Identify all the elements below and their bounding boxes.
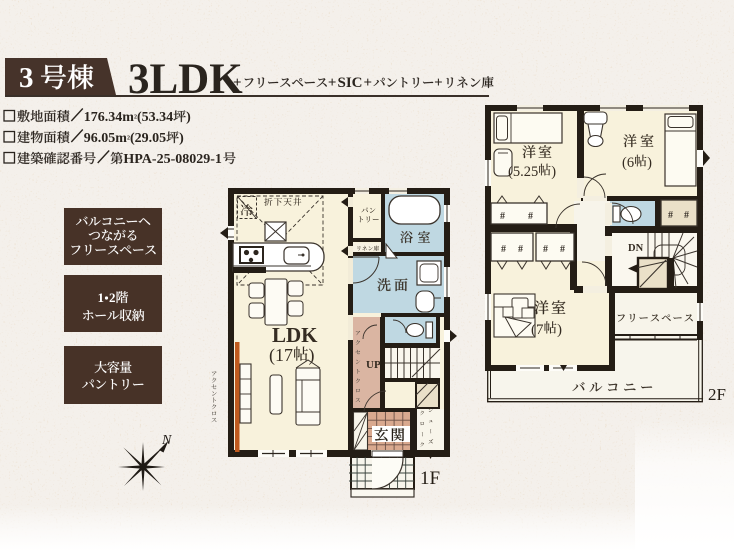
svg-text:#: # (543, 244, 548, 255)
svg-text:(5.25: (5.25 (508, 164, 538, 180)
svg-text:(29.05: (29.05 (130, 131, 166, 146)
svg-text:LDK: LDK (272, 323, 318, 347)
svg-text:): ) (551, 164, 556, 180)
svg-text:#: # (560, 244, 565, 255)
svg-text:DN: DN (628, 243, 644, 254)
svg-text:#: # (518, 244, 523, 255)
svg-text:): ) (179, 131, 184, 146)
svg-text:96.05m: 96.05m (84, 131, 128, 146)
svg-text:#: # (684, 210, 689, 221)
svg-text:(7: (7 (531, 322, 544, 338)
svg-text:3: 3 (19, 62, 34, 94)
svg-text:(53.34: (53.34 (137, 110, 173, 125)
svg-text:#: # (528, 211, 533, 222)
svg-text:+: + (364, 75, 373, 91)
svg-text:176.34m: 176.34m (84, 110, 135, 125)
svg-text:): ) (647, 155, 652, 171)
svg-text:1: 1 (98, 290, 105, 305)
svg-text:+: + (328, 75, 337, 91)
svg-text:): ) (557, 322, 562, 338)
svg-text:+: + (434, 75, 443, 91)
svg-text:(6: (6 (622, 155, 634, 171)
svg-text:(17: (17 (269, 345, 293, 366)
svg-text:): ) (186, 110, 191, 125)
svg-text:SIC: SIC (338, 75, 363, 91)
svg-text:#: # (501, 244, 506, 255)
svg-text:2: 2 (109, 290, 116, 305)
svg-text:1F: 1F (420, 468, 440, 489)
svg-text:+: + (233, 75, 242, 91)
svg-text:UP: UP (366, 359, 381, 371)
svg-text:#: # (668, 210, 673, 221)
svg-text:#: # (500, 211, 505, 222)
svg-text:2F: 2F (708, 385, 726, 404)
svg-text:N: N (161, 433, 172, 448)
svg-text:HPA-25-08029-1: HPA-25-08029-1 (123, 152, 221, 167)
